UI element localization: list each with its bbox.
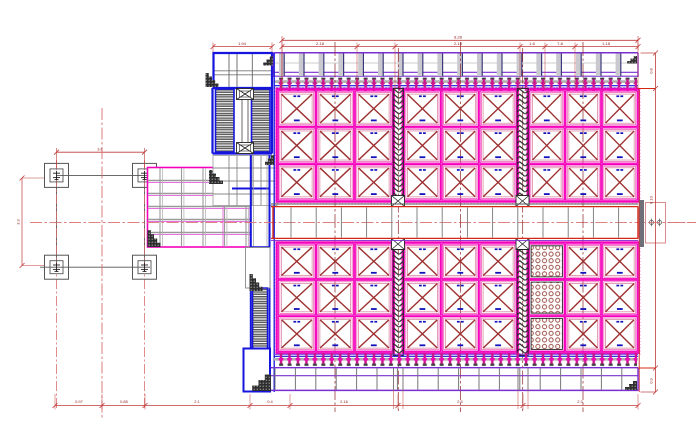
svg-text:0.4: 0.4 bbox=[267, 399, 273, 404]
svg-text:0.8: 0.8 bbox=[649, 67, 654, 73]
svg-text:0.97: 0.97 bbox=[75, 399, 84, 404]
svg-text:1.94: 1.94 bbox=[238, 41, 247, 46]
svg-text:1-18: 1-18 bbox=[602, 41, 611, 46]
svg-text:3.6: 3.6 bbox=[97, 147, 103, 152]
svg-text:0.85: 0.85 bbox=[120, 399, 129, 404]
svg-text:2.16: 2.16 bbox=[340, 399, 349, 404]
svg-text:2.5: 2.5 bbox=[457, 399, 463, 404]
svg-text:0.9: 0.9 bbox=[649, 377, 654, 383]
svg-text:8.10: 8.10 bbox=[649, 195, 654, 204]
svg-text:2-18: 2-18 bbox=[316, 41, 325, 46]
svg-text:7-8: 7-8 bbox=[557, 41, 564, 46]
svg-text:2.1: 2.1 bbox=[194, 399, 200, 404]
svg-text:8.28: 8.28 bbox=[454, 35, 463, 40]
svg-text:2.3: 2.3 bbox=[577, 399, 583, 404]
svg-text:1-6: 1-6 bbox=[529, 41, 536, 46]
svg-text:3.3: 3.3 bbox=[16, 218, 21, 224]
svg-text:2-18: 2-18 bbox=[454, 41, 463, 46]
